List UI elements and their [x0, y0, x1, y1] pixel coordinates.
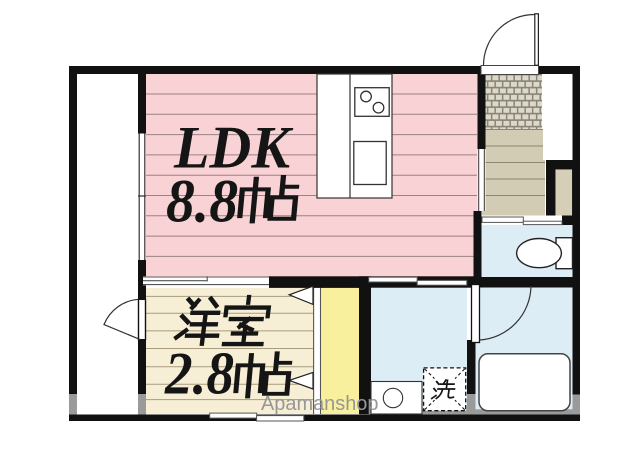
svg-text:Apamanshop: Apamanshop: [261, 393, 379, 415]
svg-text:8.8: 8.8: [166, 169, 238, 236]
svg-text:2.8: 2.8: [164, 341, 234, 407]
